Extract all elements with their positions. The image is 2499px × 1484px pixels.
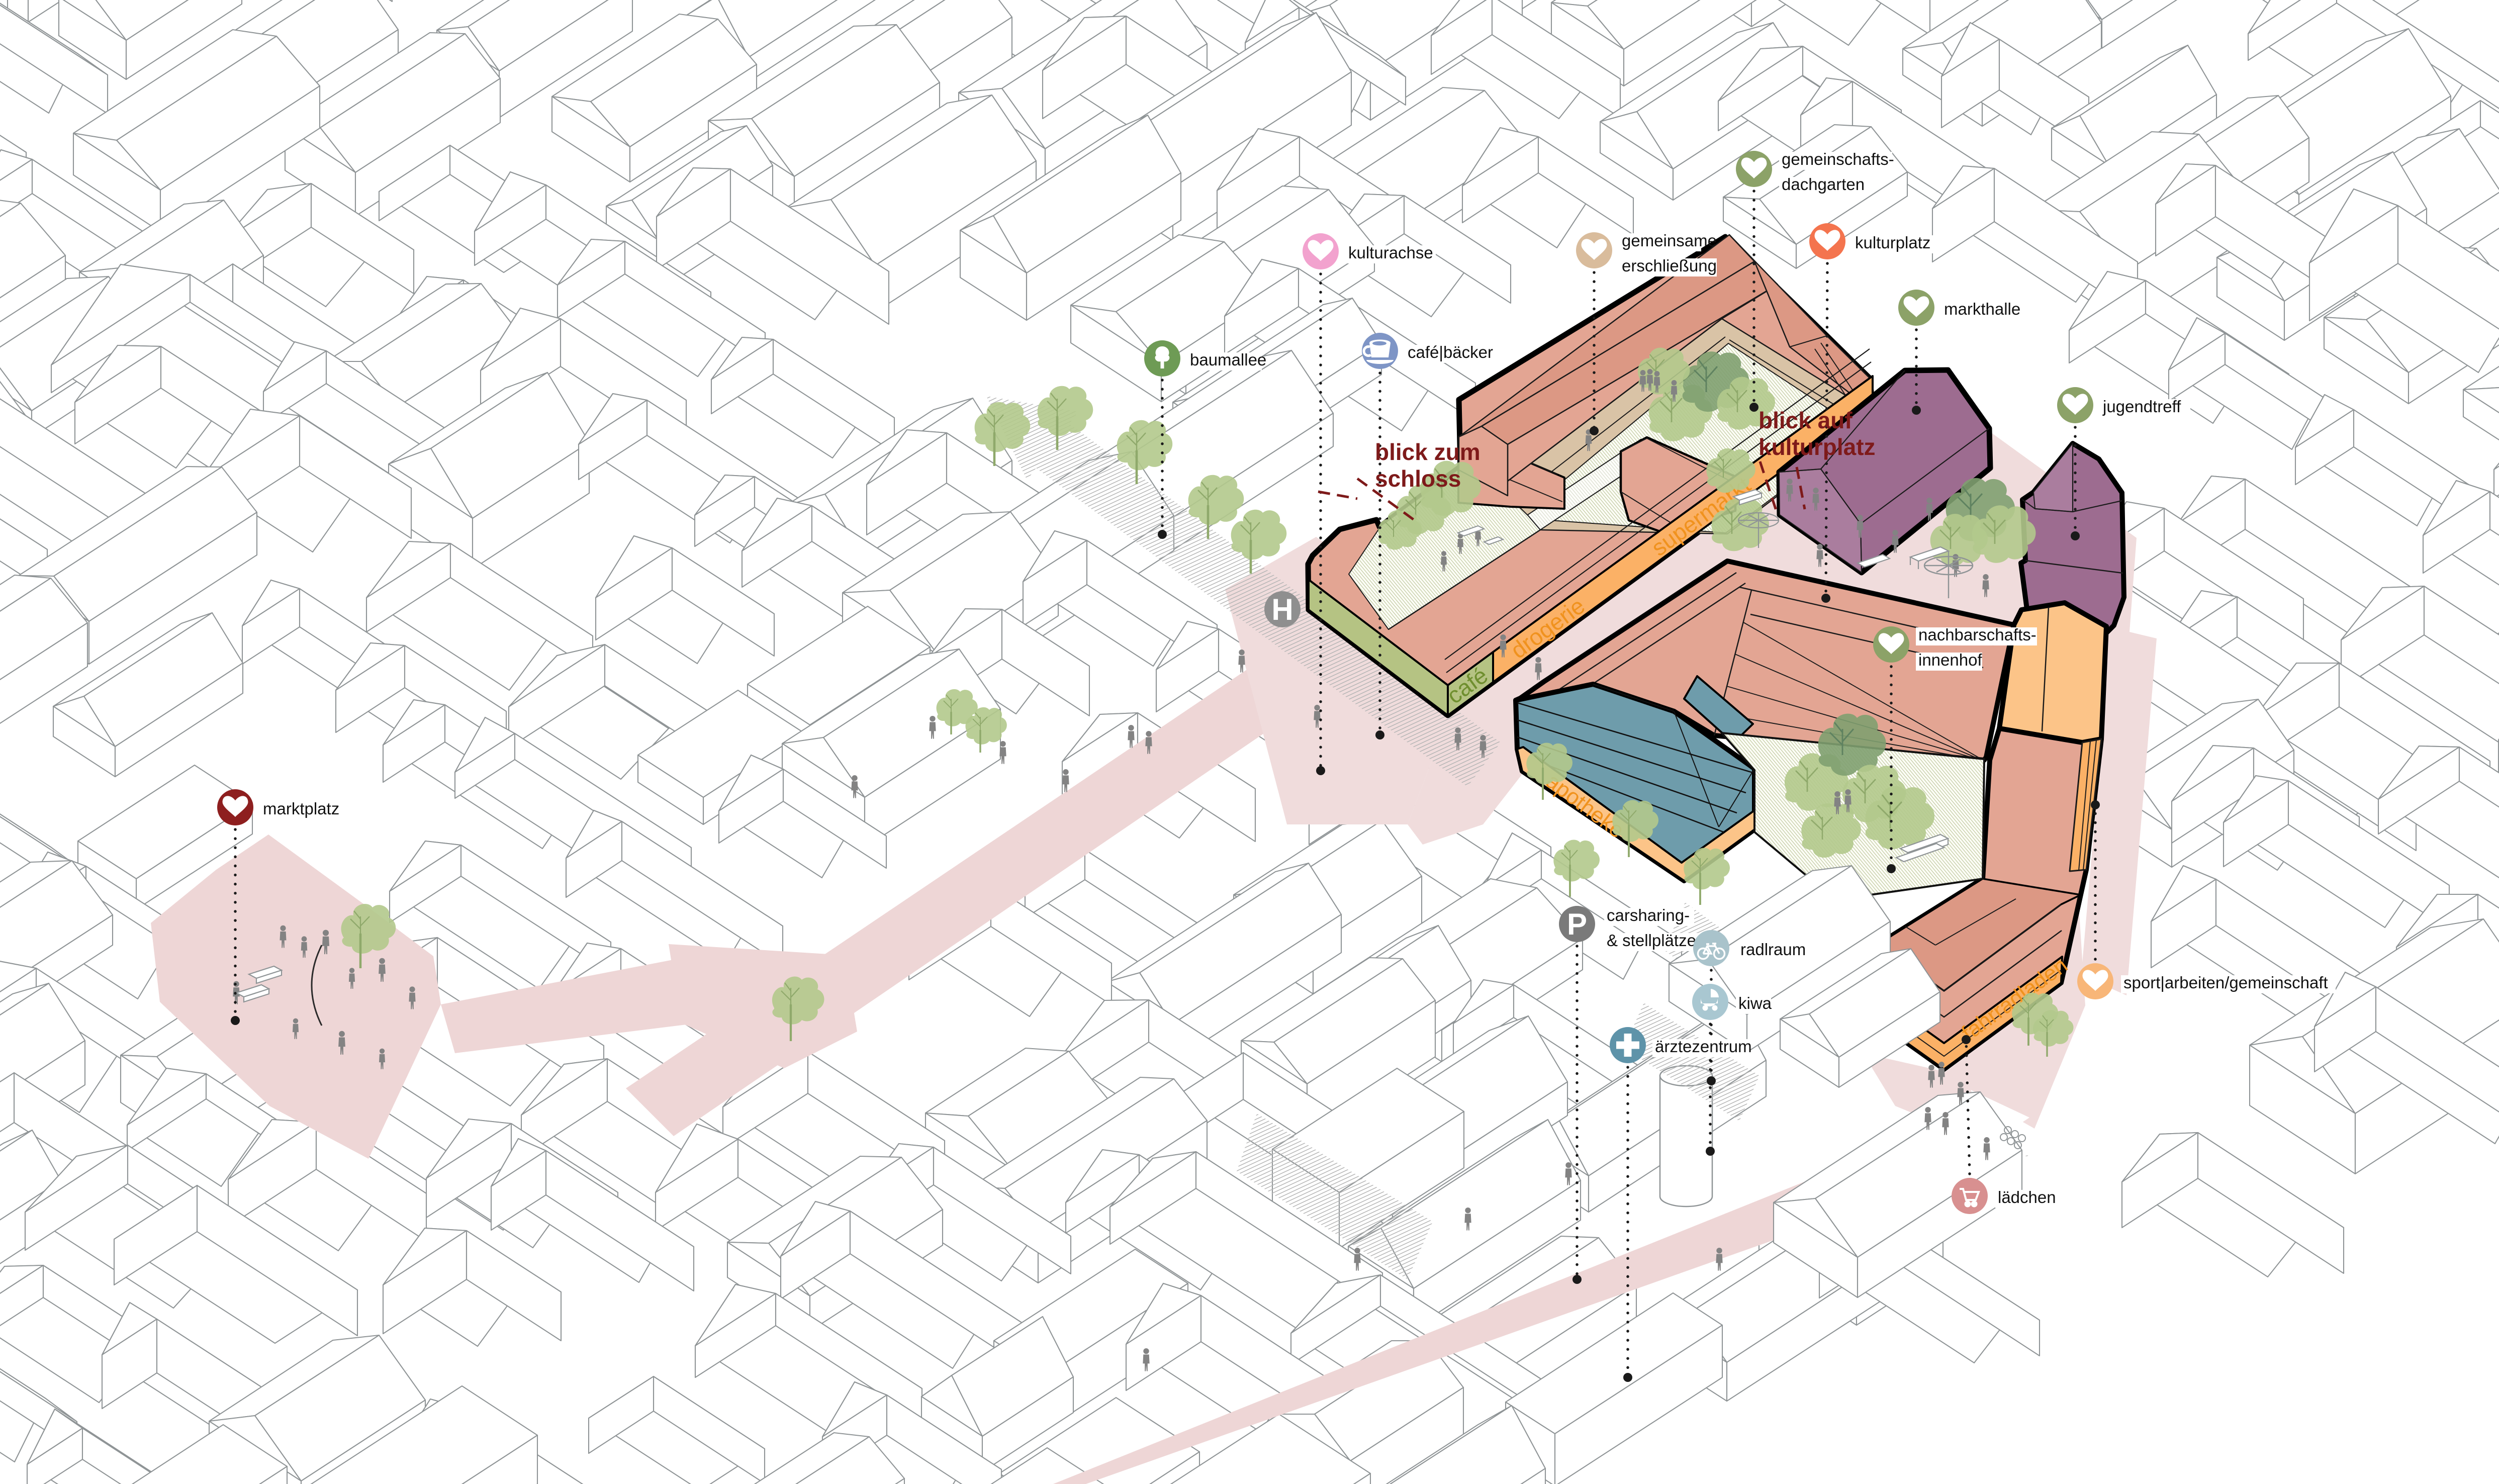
svg-text:kulturachse: kulturachse — [1348, 243, 1433, 262]
svg-text:H: H — [1271, 593, 1293, 626]
svg-text:erschließung: erschließung — [1622, 256, 1717, 275]
svg-text:café|bäcker: café|bäcker — [1408, 343, 1493, 361]
svg-text:lädchen: lädchen — [1998, 1188, 2056, 1207]
svg-text:blick zum: blick zum — [1375, 439, 1480, 465]
svg-text:markthalle: markthalle — [1944, 300, 2020, 318]
svg-text:kulturplatz: kulturplatz — [1855, 233, 1930, 252]
svg-text:P: P — [1567, 907, 1587, 941]
svg-text:kulturplatz: kulturplatz — [1758, 434, 1876, 460]
svg-text:blick auf: blick auf — [1758, 407, 1853, 433]
svg-text:jugendtreff: jugendtreff — [2102, 397, 2181, 416]
svg-text:carsharing-: carsharing- — [1607, 906, 1690, 924]
svg-text:gemeinschafts-: gemeinschafts- — [1782, 150, 1894, 168]
svg-text:baumallee: baumallee — [1190, 350, 1266, 369]
svg-text:dachgarten: dachgarten — [1782, 175, 1865, 194]
svg-text:schloss: schloss — [1375, 466, 1461, 492]
svg-text:& stellplätze: & stellplätze — [1607, 931, 1696, 950]
svg-text:kiwa: kiwa — [1738, 994, 1772, 1012]
svg-text:radlraum: radlraum — [1740, 940, 1806, 959]
svg-text:ärztezentrum: ärztezentrum — [1655, 1037, 1752, 1056]
svg-text:marktplatz: marktplatz — [263, 799, 339, 818]
svg-text:nachbarschafts-: nachbarschafts- — [1918, 625, 2037, 644]
svg-text:gemeinsame: gemeinsame — [1622, 231, 1717, 250]
svg-text:innenhof: innenhof — [1918, 651, 1982, 669]
svg-text:sport|arbeiten/gemeinschaft: sport|arbeiten/gemeinschaft — [2123, 973, 2328, 992]
